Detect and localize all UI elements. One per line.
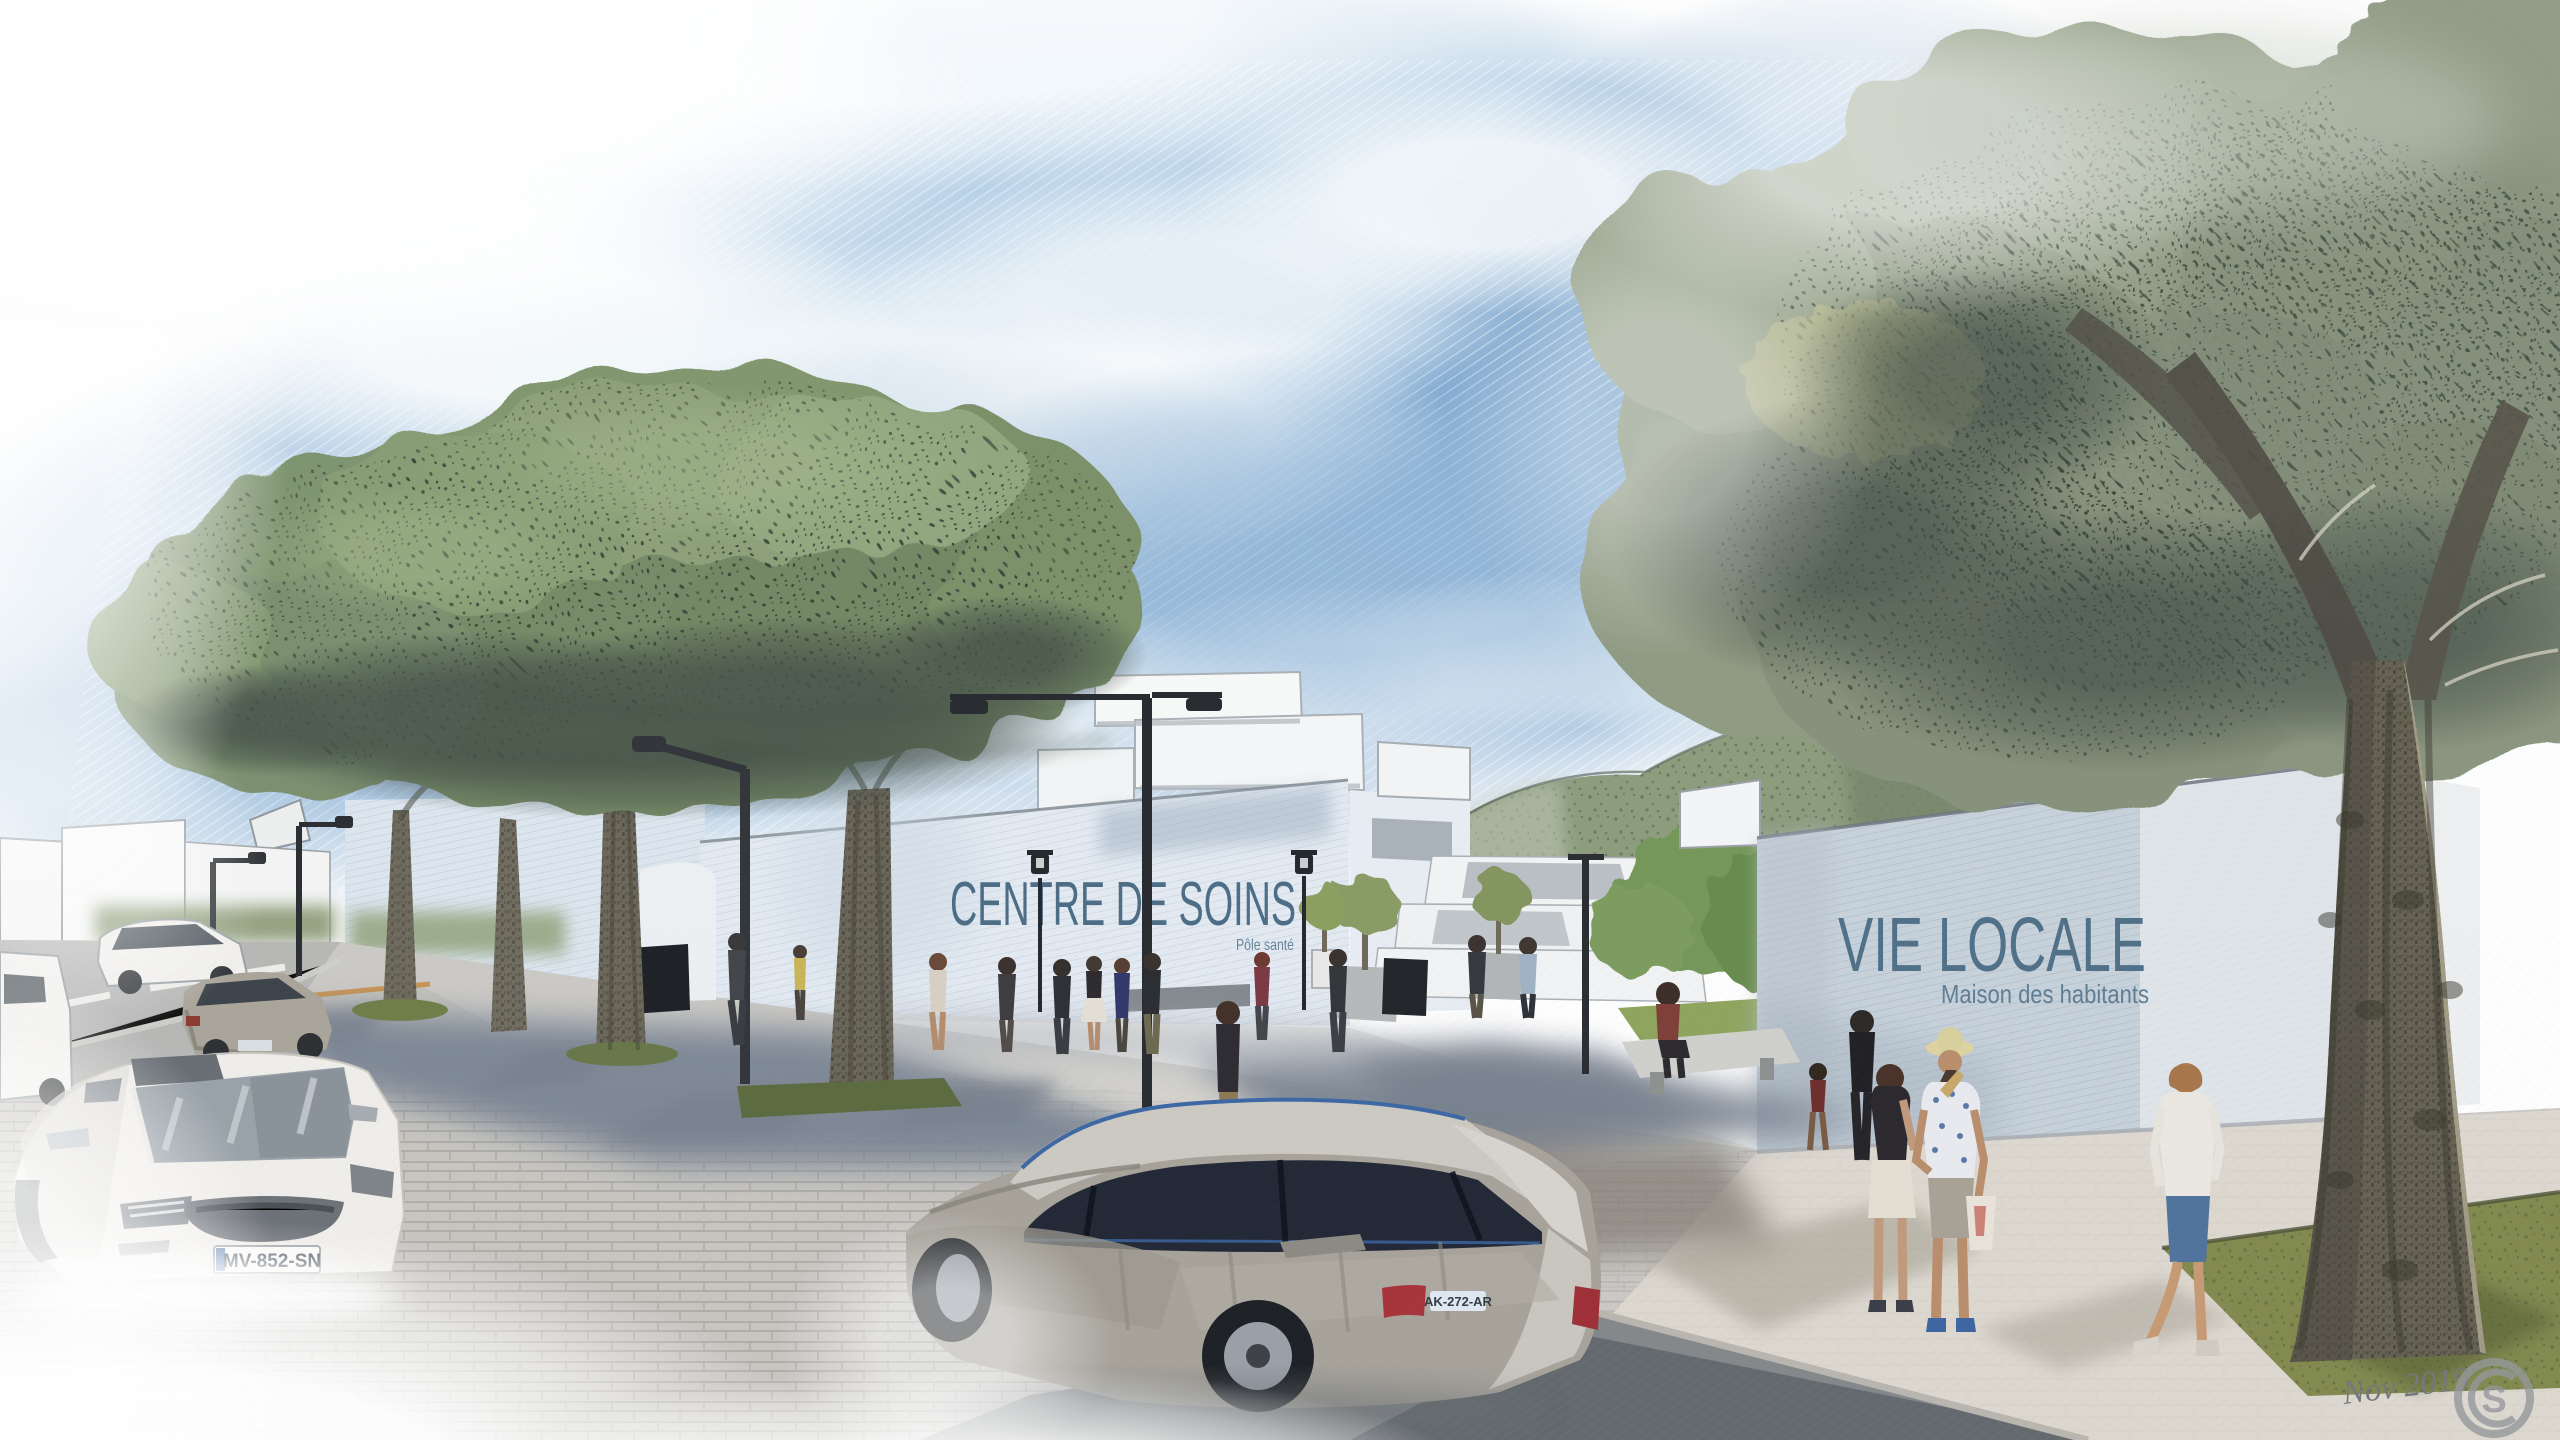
svg-text:S: S [2481, 1379, 2506, 1421]
svg-text:CENTRE DE SOINS: CENTRE DE SOINS [950, 870, 1296, 939]
